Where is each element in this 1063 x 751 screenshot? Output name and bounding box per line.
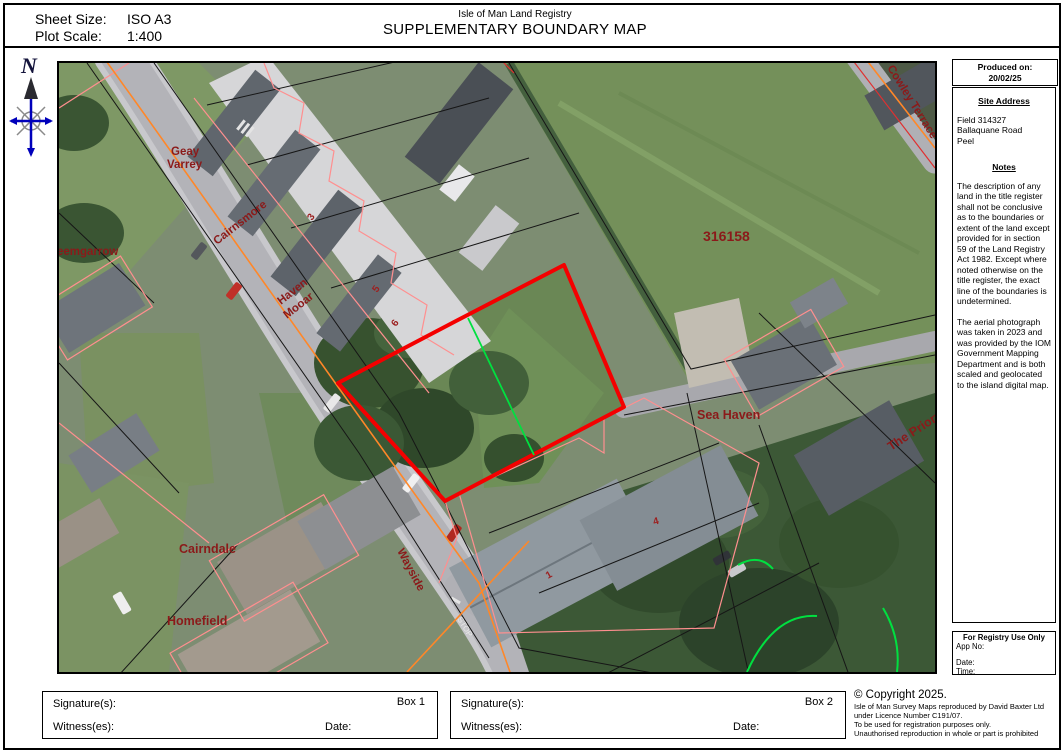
label-leemgarrow: eemgarrow (59, 246, 118, 258)
box2-witness-label: Witness(es): (461, 721, 522, 733)
copyright-line-2: Isle of Man Survey Maps reproduced by Da… (854, 702, 1062, 711)
site-address-line-3: Peel (957, 136, 1051, 147)
north-compass: N (9, 51, 53, 161)
signature-box-1: Signature(s): Box 1 Witness(es): Date: (42, 691, 438, 739)
plot-scale-label: Plot Scale: (35, 28, 127, 45)
box2-label: Box 2 (805, 696, 833, 708)
label-cairndale: Cairndale (179, 542, 236, 556)
produced-on-label: Produced on: (953, 62, 1057, 73)
notes-paragraph-2: The aerial photograph was taken in 2023 … (957, 317, 1051, 391)
page-frame: Sheet Size: ISO A3 Plot Scale: 1:400 Isl… (3, 3, 1061, 750)
box1-label: Box 1 (397, 696, 425, 708)
box1-signature-label: Signature(s): (53, 698, 116, 710)
site-address-heading: Site Address (957, 96, 1051, 107)
north-label: N (20, 53, 38, 78)
sheet-info: Sheet Size: ISO A3 Plot Scale: 1:400 (35, 11, 171, 45)
registry-name: Isle of Man Land Registry (305, 9, 725, 21)
title-block: Isle of Man Land Registry SUPPLEMENTARY … (305, 9, 725, 39)
map-canvas: Geay Varrey Cairnsmore eemgarrow Haven M… (59, 63, 935, 672)
app-no-label: App No: (956, 643, 1052, 652)
notes-paragraph-1: The description of any land in the title… (957, 181, 1051, 307)
page-title: SUPPLEMENTARY BOUNDARY MAP (305, 21, 725, 39)
copyright-line-1: © Copyright 2025. (854, 689, 1062, 702)
north-arrow-icon (9, 77, 53, 157)
aerial-boundary-map: Geay Varrey Cairnsmore eemgarrow Haven M… (57, 61, 937, 674)
site-address-line-1: Field 314327 (957, 115, 1051, 126)
registry-time-label: Time: (956, 668, 1052, 677)
header-bar: Sheet Size: ISO A3 Plot Scale: 1:400 Isl… (5, 5, 1059, 48)
label-homefield: Homefield (167, 614, 227, 628)
plot-scale-value: 1:400 (127, 28, 162, 45)
copyright-line-4: To be used for registration purposes onl… (854, 720, 1062, 729)
label-geay-varrey-1: Geay (171, 146, 200, 158)
notes-heading: Notes (957, 162, 1051, 173)
sheet-size-value: ISO A3 (127, 11, 171, 28)
label-geay-varrey-2: Varrey (167, 159, 203, 171)
box2-signature-label: Signature(s): (461, 698, 524, 710)
copyright-line-3: under Licence Number C191/07. (854, 711, 1062, 720)
boundary-map-page: Sheet Size: ISO A3 Plot Scale: 1:400 Isl… (0, 0, 1063, 751)
site-address-notes-box: Site Address Field 314327 Ballaquane Roa… (952, 87, 1056, 623)
box2-date-label: Date: (733, 721, 759, 733)
registry-use-box: For Registry Use Only App No: Date: Time… (952, 631, 1056, 675)
produced-on-box: Produced on: 20/02/25 (952, 59, 1058, 86)
box1-date-label: Date: (325, 721, 351, 733)
copyright-block: © Copyright 2025. Isle of Man Survey Map… (854, 689, 1062, 738)
copyright-line-5: Unauthorised reproduction in whole or pa… (854, 729, 1062, 738)
produced-on-date: 20/02/25 (953, 73, 1057, 84)
box1-witness-label: Witness(es): (53, 721, 114, 733)
label-sea-haven: Sea Haven (697, 408, 760, 422)
label-parcel-number: 316158 (703, 228, 750, 244)
signature-box-2: Signature(s): Box 2 Witness(es): Date: (450, 691, 846, 739)
sheet-size-label: Sheet Size: (35, 11, 127, 28)
site-address-line-2: Ballaquane Road (957, 125, 1051, 136)
